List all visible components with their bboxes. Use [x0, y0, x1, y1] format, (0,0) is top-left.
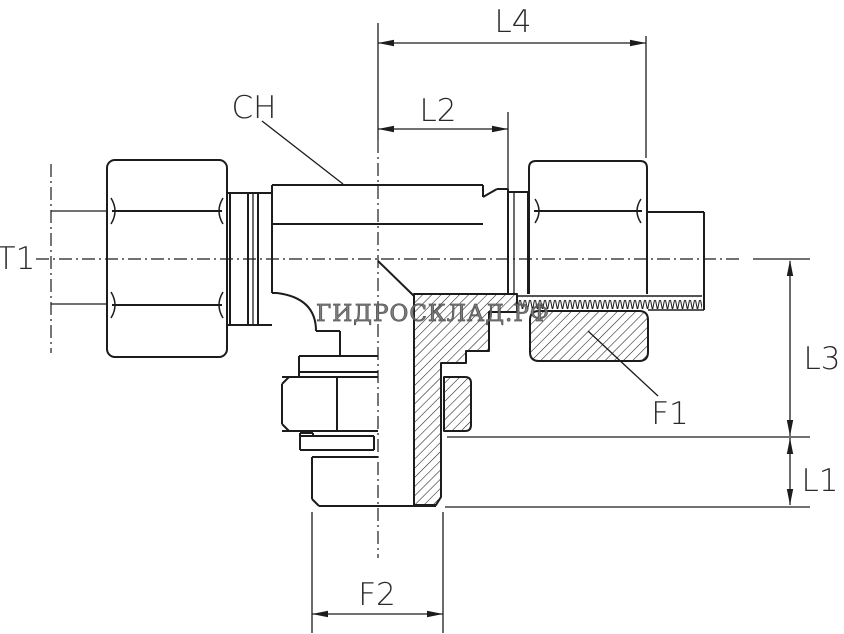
dimension-label-l1: L1 — [802, 463, 839, 499]
dimension-label-ch: CH — [232, 90, 277, 126]
branch-locknut-stud — [282, 377, 436, 506]
dimension-label-l2: L2 — [420, 93, 457, 129]
right-port — [508, 161, 704, 310]
locknut-section — [444, 377, 471, 431]
thread-zigzag — [517, 297, 702, 309]
dimension-label-f2: F2 — [358, 577, 396, 613]
dimension-label-l3: L3 — [804, 341, 841, 377]
dimension-label-l4: L4 — [495, 4, 532, 40]
technical-drawing-page: L4 L2 CH T1 L3 L1 F1 F2 ГИДРОСКЛАД.РФ — [0, 0, 844, 634]
dimension-label-f1: F1 — [651, 396, 689, 432]
fitting-drawing: L4 L2 CH T1 L3 L1 F1 F2 — [0, 0, 844, 634]
f1-nut-section — [530, 311, 648, 361]
dimension-label-t1: T1 — [0, 241, 35, 277]
section-hatching — [414, 294, 648, 505]
